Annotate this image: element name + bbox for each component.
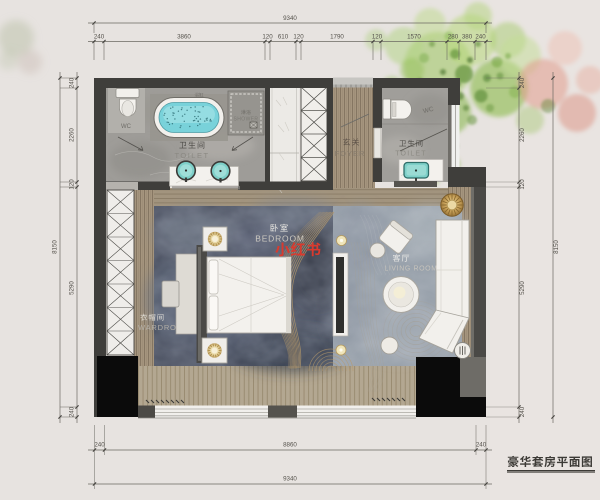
svg-text:LIVING ROOM: LIVING ROOM: [384, 266, 437, 273]
svg-text:9340: 9340: [283, 15, 297, 22]
svg-text:TOILET: TOILET: [395, 151, 427, 158]
svg-text:2260: 2260: [69, 128, 76, 142]
svg-text:5290: 5290: [69, 281, 76, 295]
svg-text:BEDROOM: BEDROOM: [255, 234, 305, 244]
svg-text:120: 120: [69, 179, 76, 190]
svg-text:5290: 5290: [519, 281, 526, 295]
svg-text:FOYER: FOYER: [335, 149, 366, 158]
svg-text:240: 240: [519, 406, 526, 417]
svg-text:WC: WC: [121, 124, 132, 130]
svg-text:380: 380: [462, 34, 473, 41]
svg-text:240: 240: [519, 77, 526, 88]
svg-text:240: 240: [69, 77, 76, 88]
svg-text:120: 120: [293, 34, 304, 41]
svg-text:1570: 1570: [407, 34, 421, 41]
svg-text:8150: 8150: [52, 240, 59, 254]
svg-text:120: 120: [262, 34, 273, 41]
svg-text:2260: 2260: [519, 128, 526, 142]
svg-text:240: 240: [476, 442, 487, 449]
svg-text:240: 240: [94, 34, 105, 41]
svg-text:1790: 1790: [330, 34, 344, 41]
svg-text:9340: 9340: [283, 476, 297, 483]
svg-text:8150: 8150: [553, 240, 560, 254]
svg-text:120: 120: [519, 179, 526, 190]
svg-text:3860: 3860: [177, 34, 191, 41]
svg-text:610: 610: [278, 34, 289, 41]
svg-text:240: 240: [69, 406, 76, 417]
svg-text:8860: 8860: [283, 442, 297, 449]
svg-text:SHOWER: SHOWER: [234, 117, 259, 123]
svg-text:240: 240: [94, 442, 105, 449]
svg-text:280: 280: [448, 34, 459, 41]
svg-text:120: 120: [372, 34, 383, 41]
svg-text:240: 240: [475, 34, 486, 41]
svg-text:TOILET: TOILET: [174, 151, 209, 160]
